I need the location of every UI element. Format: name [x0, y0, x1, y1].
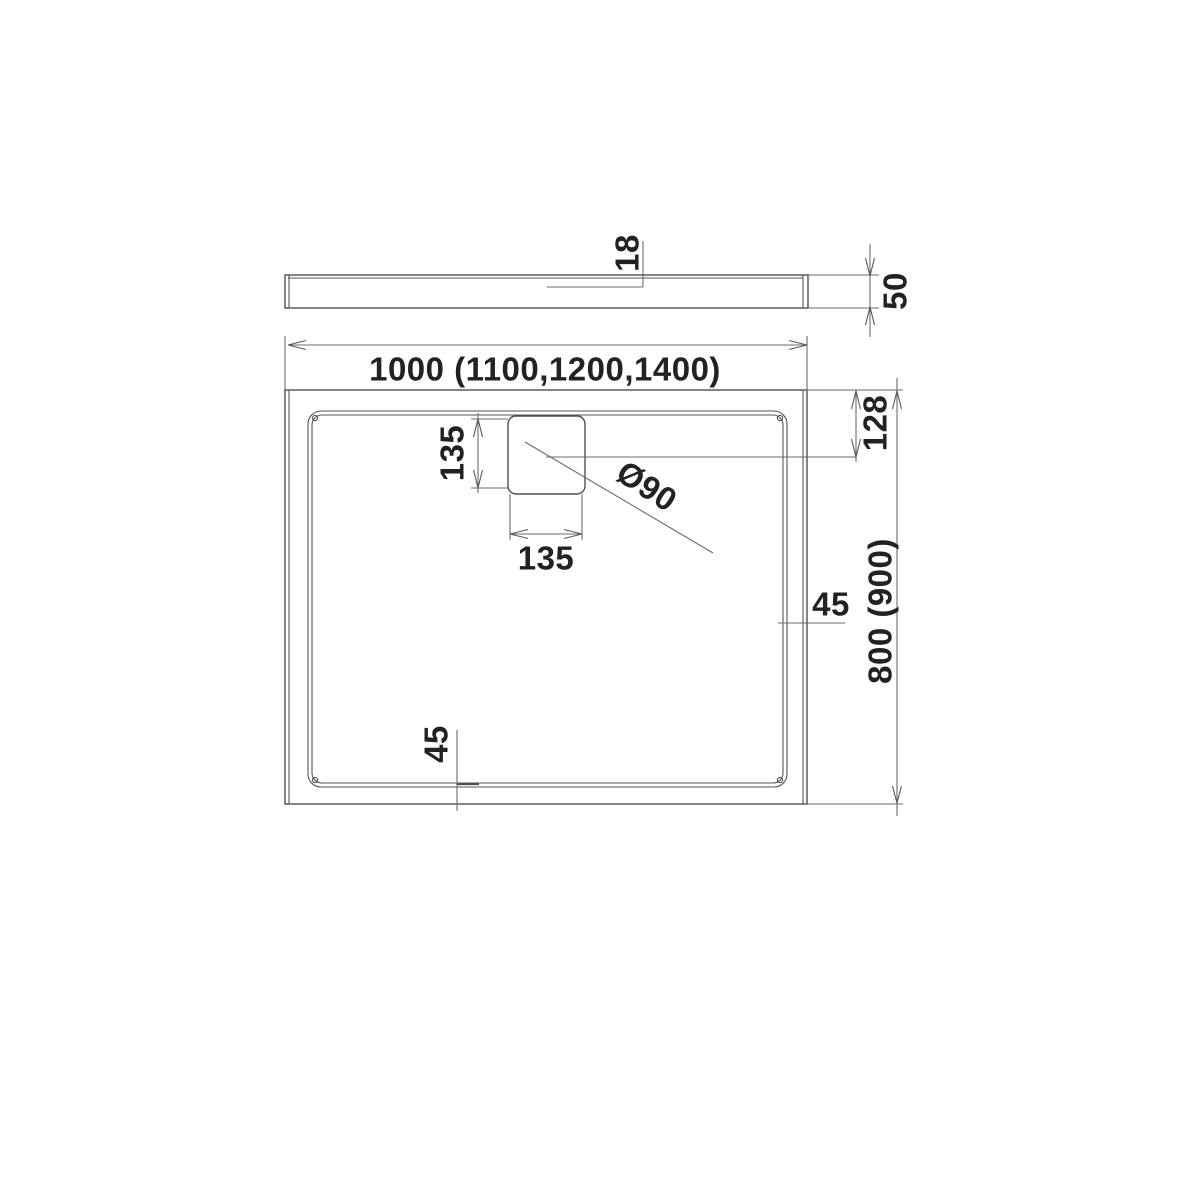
dim-drain-width-label: 135 — [518, 540, 575, 577]
dim-rim-right-label: 45 — [812, 586, 850, 623]
side-view — [285, 275, 808, 308]
dim-drain-height-label: 135 — [434, 425, 471, 482]
dim-width-label: 1000 (1100,1200,1400) — [369, 351, 721, 388]
dimension-total-height: 50 — [808, 244, 914, 337]
dimension-drain-width: 135 — [510, 494, 582, 577]
dimension-rim-right: 45 — [778, 586, 850, 624]
drain-diameter-leader — [525, 442, 713, 553]
dimension-drain-height: 135 — [434, 413, 509, 493]
dimension-drain-offset: 128 — [807, 390, 903, 462]
dim-drain-diameter-label: Ø90 — [610, 453, 684, 519]
basin-rim-outer — [308, 411, 787, 787]
dimension-rim-bottom: 45 — [418, 725, 480, 811]
plan-view — [285, 390, 856, 804]
dim-drain-offset-label: 128 — [857, 395, 894, 452]
technical-drawing: 18 50 1000 (1100,1200,1400) Ø90 — [0, 0, 1200, 1200]
basin-rim-inner — [312, 415, 783, 783]
dimension-width: 1000 (1100,1200,1400) — [285, 336, 807, 392]
dim-total-height-label: 50 — [877, 272, 914, 310]
side-view-profile — [285, 275, 808, 308]
dim-depth-label: 800 (900) — [862, 538, 899, 684]
tray-outer-outline — [285, 390, 807, 804]
dim-rim-thickness-label: 18 — [609, 234, 646, 272]
dim-rim-bottom-label: 45 — [418, 725, 455, 763]
drawing-canvas: 18 50 1000 (1100,1200,1400) Ø90 — [0, 0, 1200, 1200]
dimension-rim-thickness: 18 — [547, 234, 646, 287]
